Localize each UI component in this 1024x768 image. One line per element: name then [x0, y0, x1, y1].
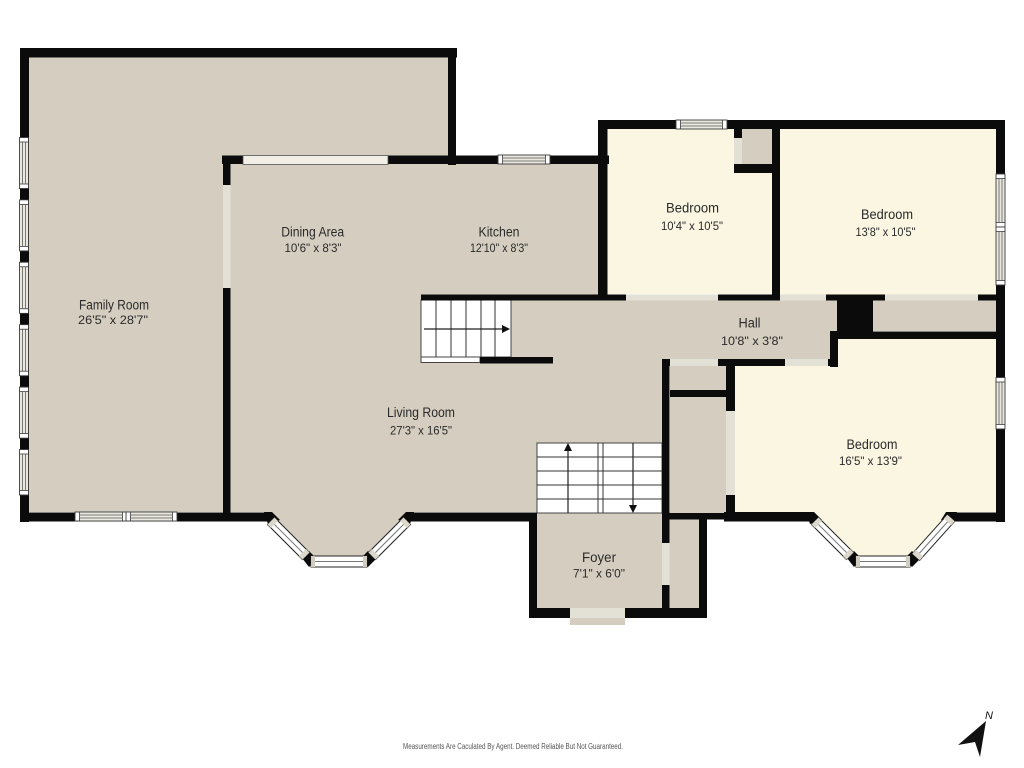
svg-text:7'1" x 6'0": 7'1" x 6'0" — [573, 567, 625, 581]
svg-text:13'8" x 10'5": 13'8" x 10'5" — [856, 225, 916, 239]
svg-text:Bedroom: Bedroom — [847, 437, 898, 452]
svg-text:12'10" x 8'3": 12'10" x 8'3" — [470, 241, 528, 255]
svg-text:10'4" x 10'5": 10'4" x 10'5" — [661, 219, 723, 233]
svg-text:10'6" x 8'3": 10'6" x 8'3" — [285, 241, 342, 255]
svg-text:Dining Area: Dining Area — [281, 225, 344, 240]
svg-text:10'8" x 3'8": 10'8" x 3'8" — [721, 334, 783, 348]
svg-text:27'3" x 16'5": 27'3" x 16'5" — [390, 424, 452, 438]
svg-text:Family Room: Family Room — [79, 298, 149, 313]
svg-text:Bedroom: Bedroom — [861, 207, 913, 222]
svg-text:26'5" x 28'7": 26'5" x 28'7" — [78, 313, 148, 327]
svg-text:Hall: Hall — [739, 316, 761, 331]
svg-text:Kitchen: Kitchen — [479, 225, 520, 240]
svg-text:Living Room: Living Room — [387, 405, 455, 420]
svg-text:Measurements Are Caculated By: Measurements Are Caculated By Agent. Dee… — [403, 742, 623, 751]
svg-text:16'5" x 13'9": 16'5" x 13'9" — [839, 454, 902, 468]
svg-text:Bedroom: Bedroom — [666, 201, 719, 216]
svg-text:N: N — [985, 710, 993, 722]
svg-text:Foyer: Foyer — [582, 550, 616, 565]
